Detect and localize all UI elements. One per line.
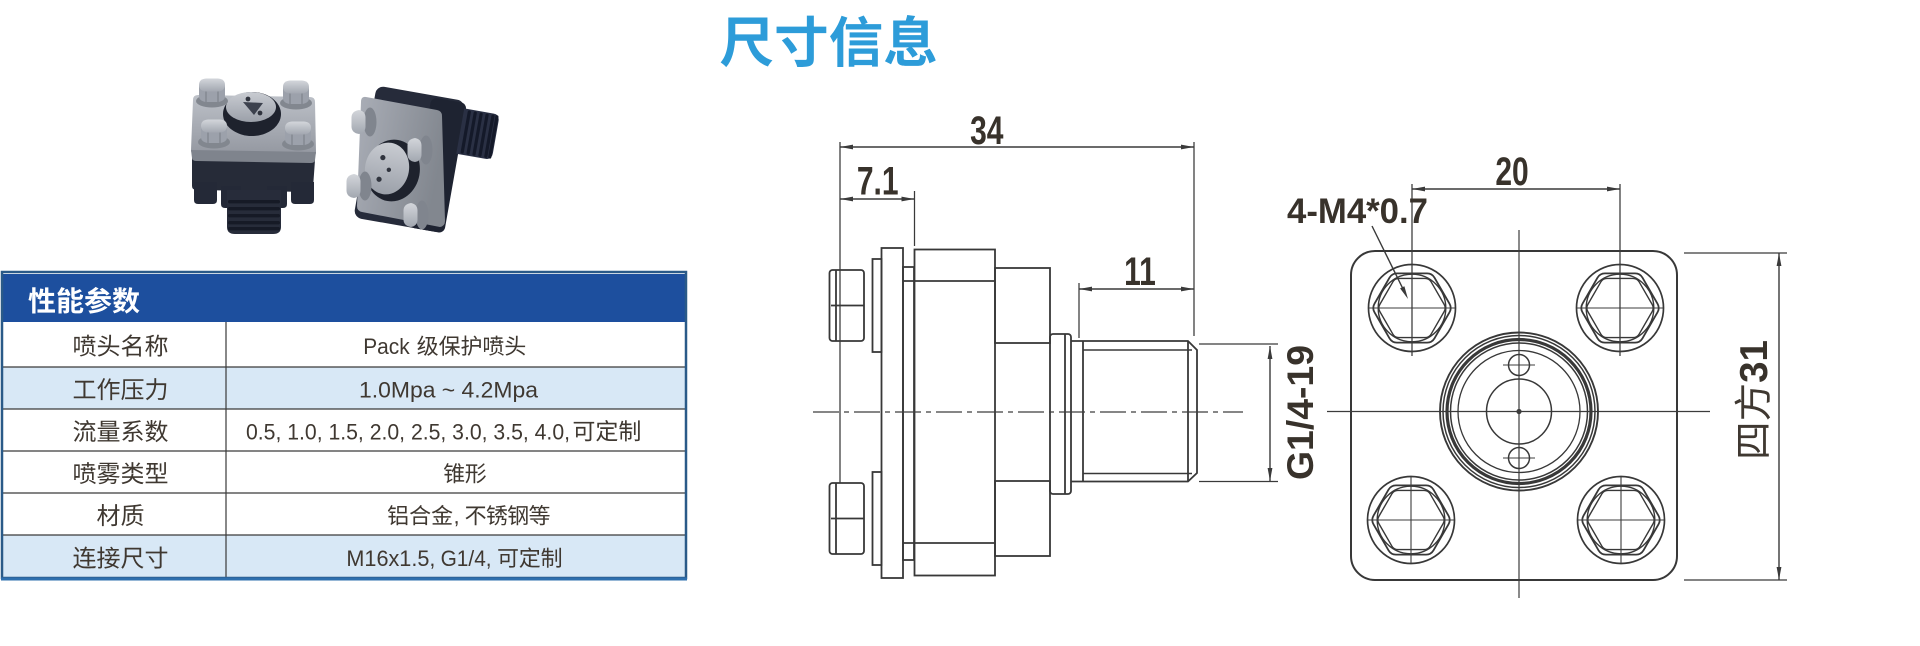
- svg-text:G1/4,: G1/4,: [441, 546, 492, 571]
- svg-text:4-M4*0.7: 4-M4*0.7: [1287, 192, 1428, 231]
- svg-text:31: 31: [1733, 340, 1776, 383]
- svg-text:34: 34: [970, 109, 1004, 153]
- svg-text:1.0Mpa ~ 4.2Mpa: 1.0Mpa ~ 4.2Mpa: [359, 378, 539, 403]
- svg-text:11: 11: [1124, 250, 1156, 294]
- svg-text:Pack: Pack: [363, 334, 410, 359]
- svg-text:M16x1.5,: M16x1.5,: [346, 546, 435, 571]
- svg-text:20: 20: [1495, 150, 1528, 194]
- svg-text:7.1: 7.1: [857, 159, 899, 203]
- svg-text:,: ,: [454, 504, 460, 529]
- svg-text:0.5, 1.0, 1.5, 2.0, 2.5, 3.0,: 0.5, 1.0, 1.5, 2.0, 2.5, 3.0, 3.5, 4.0,: [246, 420, 570, 445]
- svg-text:G1/4-19: G1/4-19: [1280, 345, 1321, 480]
